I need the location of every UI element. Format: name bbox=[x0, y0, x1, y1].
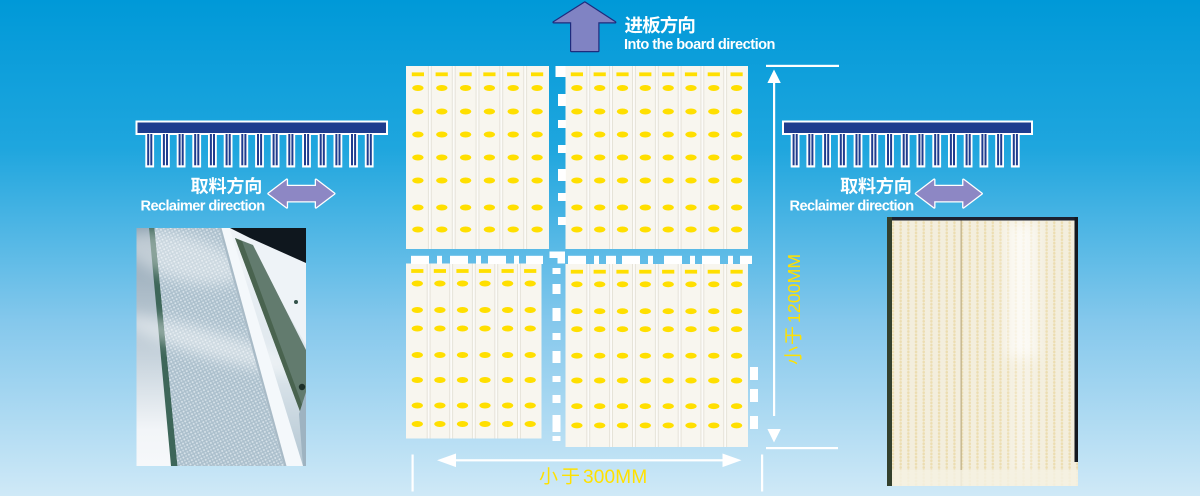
svg-text:Reclaimer direction: Reclaimer direction bbox=[790, 199, 915, 215]
svg-text:300MM: 300MM bbox=[583, 467, 647, 488]
svg-text:Reclaimer direction: Reclaimer direction bbox=[141, 199, 266, 215]
svg-text:1200MM: 1200MM bbox=[784, 254, 804, 323]
svg-text:Into the board direction: Into the board direction bbox=[624, 37, 776, 53]
